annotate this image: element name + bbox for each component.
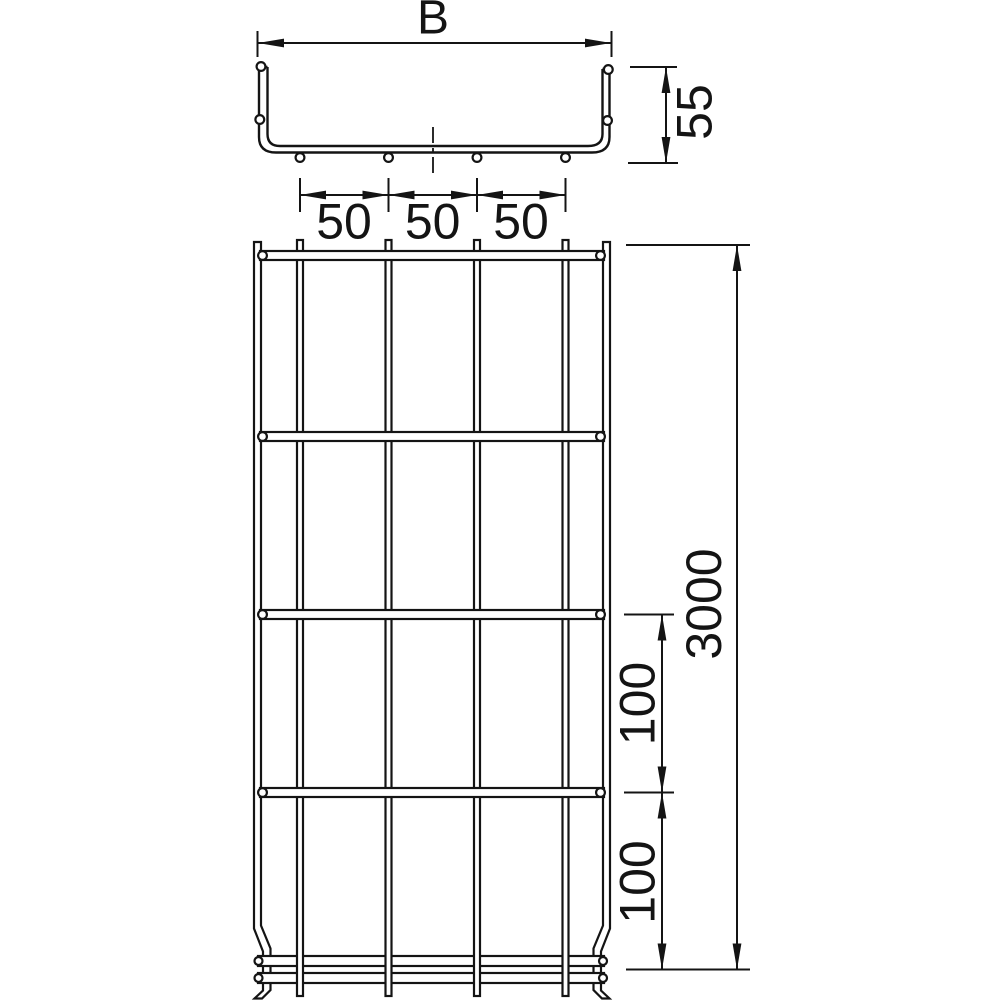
weld-circle	[596, 610, 605, 619]
dim-label-width: B	[417, 0, 449, 45]
dim-label-length: 3000	[676, 548, 732, 659]
weld-circle	[258, 610, 267, 619]
weld-circle	[599, 957, 607, 965]
weld-circle	[603, 116, 612, 125]
weld-circle	[258, 788, 267, 797]
cable-tray-drawing: B 55 50 50 50	[0, 0, 1000, 1000]
weld-circle	[255, 974, 263, 982]
technical-drawing-page: B 55 50 50 50	[0, 0, 1000, 1000]
arrowhead-down	[658, 944, 667, 970]
cross-section-view: B 55 50 50 50	[255, 0, 722, 250]
tray-wall-top-caps	[259, 67, 610, 69]
weld-circle	[604, 65, 613, 74]
weld-circle	[258, 432, 267, 441]
dim-label-rung-pitch-2: 100	[610, 840, 666, 923]
dim-label-rung-pitch-1: 100	[610, 662, 666, 745]
weld-circle	[596, 251, 605, 260]
dim-label-spacing-2: 50	[405, 194, 461, 250]
dimension-width-b: B	[258, 0, 612, 57]
dim-label-height: 55	[667, 84, 723, 140]
end-rung	[258, 956, 604, 966]
weld-circle	[255, 957, 263, 965]
side-rail-right	[594, 242, 611, 999]
end-rung	[258, 973, 604, 983]
weld-circle	[599, 974, 607, 982]
dimension-spacing-50: 50 50 50	[300, 178, 566, 250]
tray-profile-inner	[268, 67, 603, 146]
dimension-rung-pitch-1: 100	[610, 615, 675, 793]
dim-label-spacing-3: 50	[493, 194, 549, 250]
cross-rung	[260, 610, 604, 619]
arrowhead-right	[585, 39, 611, 48]
weld-circle	[596, 788, 605, 797]
weld-circle	[257, 62, 266, 71]
dimension-rung-pitch-2: 100	[610, 793, 667, 970]
weld-circle	[296, 153, 305, 162]
cross-rung	[260, 432, 604, 441]
side-rail-left	[254, 242, 271, 999]
weld-circle	[473, 153, 482, 162]
tray-profile-outer	[259, 67, 610, 153]
arrowhead-up	[658, 793, 667, 819]
weld-circle	[384, 153, 393, 162]
arrowhead-down	[658, 767, 667, 793]
weld-circle	[255, 115, 264, 124]
arrowhead-down	[733, 944, 742, 970]
arrowhead-up	[733, 245, 742, 271]
cross-rung	[260, 251, 604, 260]
weld-circle	[258, 251, 267, 260]
arrowhead-left	[258, 39, 284, 48]
cross-rung	[260, 788, 604, 797]
dimension-height-55: 55	[628, 67, 723, 163]
weld-circle	[561, 153, 570, 162]
plan-view: 3000 100 100	[254, 240, 750, 999]
arrowhead-up	[658, 615, 667, 641]
weld-circle	[596, 432, 605, 441]
dim-label-spacing-1: 50	[316, 194, 372, 250]
arrowhead-down	[662, 137, 671, 163]
